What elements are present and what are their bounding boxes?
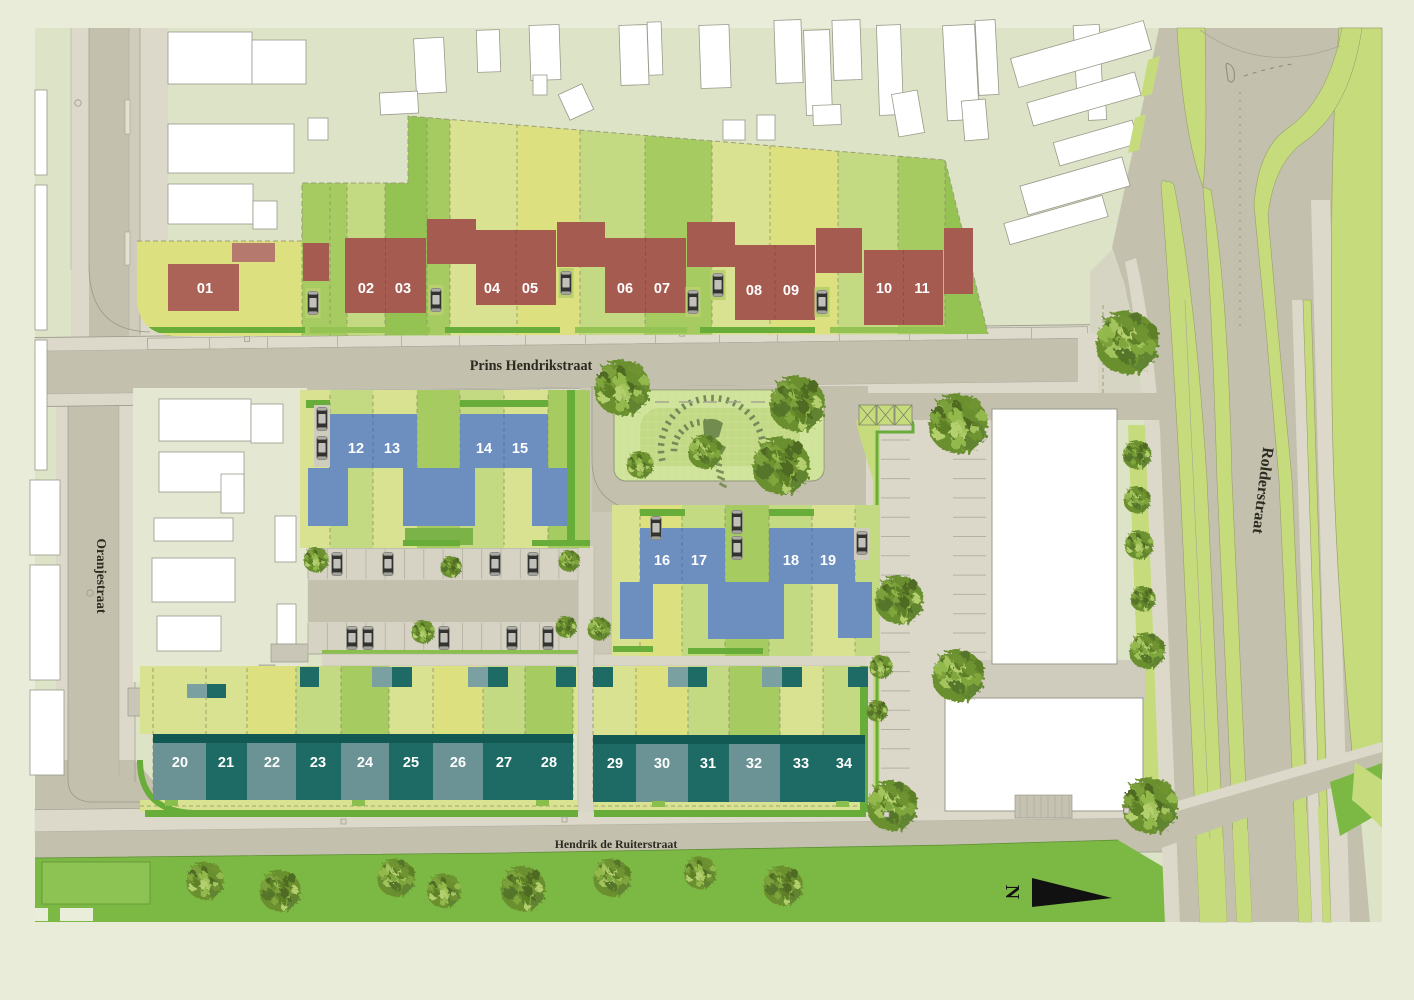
svg-text:27: 27 [496, 755, 512, 771]
svg-text:09: 09 [783, 283, 799, 299]
svg-text:22: 22 [264, 755, 280, 771]
svg-text:14: 14 [476, 441, 492, 457]
svg-text:Prins Hendrikstraat: Prins Hendrikstraat [470, 358, 593, 374]
svg-text:23: 23 [310, 755, 326, 771]
svg-text:07: 07 [654, 281, 670, 297]
svg-text:26: 26 [450, 755, 466, 771]
svg-text:Hendrik de Ruiterstraat: Hendrik de Ruiterstraat [555, 837, 678, 851]
svg-text:02: 02 [358, 281, 374, 297]
svg-text:33: 33 [793, 756, 809, 772]
svg-text:34: 34 [836, 756, 852, 772]
svg-text:17: 17 [691, 553, 707, 569]
svg-text:28: 28 [541, 755, 557, 771]
svg-text:Oranjestraat: Oranjestraat [94, 539, 109, 614]
svg-text:18: 18 [783, 553, 799, 569]
svg-text:20: 20 [172, 755, 188, 771]
svg-text:15: 15 [512, 441, 528, 457]
svg-text:29: 29 [607, 756, 623, 772]
svg-text:31: 31 [700, 756, 716, 772]
svg-text:24: 24 [357, 755, 373, 771]
svg-text:13: 13 [384, 441, 400, 457]
svg-text:16: 16 [654, 553, 670, 569]
svg-text:05: 05 [522, 281, 538, 297]
svg-text:N: N [1001, 885, 1023, 900]
svg-text:06: 06 [617, 281, 633, 297]
svg-text:01: 01 [197, 281, 213, 297]
svg-text:04: 04 [484, 281, 500, 297]
svg-text:21: 21 [218, 755, 234, 771]
svg-text:10: 10 [876, 281, 892, 297]
svg-text:08: 08 [746, 283, 762, 299]
svg-text:12: 12 [348, 441, 364, 457]
svg-text:03: 03 [395, 281, 411, 297]
svg-text:19: 19 [820, 553, 836, 569]
svg-text:25: 25 [403, 755, 419, 771]
svg-text:32: 32 [746, 756, 762, 772]
svg-text:11: 11 [914, 281, 929, 297]
svg-text:30: 30 [654, 756, 670, 772]
